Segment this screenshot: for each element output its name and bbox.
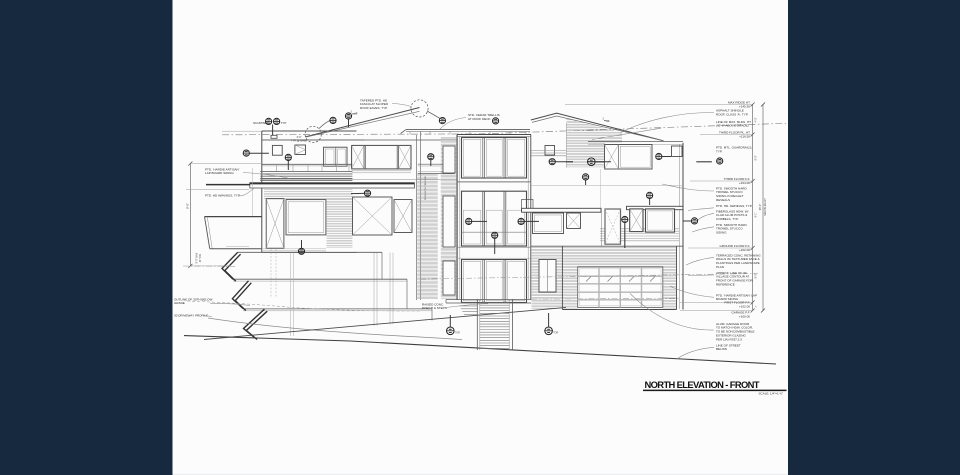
svg-text:9'-1": 9'-1" — [754, 212, 757, 217]
svg-text:TOR: TOR — [553, 332, 558, 334]
svg-text:PER (JA) R337.2.5: PER (JA) R337.2.5 — [716, 337, 742, 341]
svg-text:BELOW: BELOW — [716, 347, 727, 351]
svg-text:CORBELS, TYP.: CORBELS, TYP. — [716, 217, 739, 221]
svg-text:REFERENCE: REFERENCE — [716, 283, 735, 287]
svg-text:+104.00: +104.00 — [739, 181, 750, 185]
svg-text:AT ROOF DECK: AT ROOF DECK — [468, 117, 491, 121]
svg-text:ROOF EAVES, TYP.: ROOF EAVES, TYP. — [360, 106, 388, 110]
svg-text:+102.00: +102.00 — [739, 248, 750, 252]
svg-text:PLAN: PLAN — [716, 265, 724, 269]
svg-text:9'-0": 9'-0" — [754, 155, 757, 160]
svg-text:+100.00: +100.00 — [739, 315, 750, 319]
svg-text:ROOF, CLASS 'A', TYP.: ROOF, CLASS 'A', TYP. — [716, 112, 748, 116]
svg-text:AT TOR: AT TOR — [199, 254, 202, 263]
svg-text:SIDING: SIDING — [716, 231, 727, 235]
svg-text:8'-0": 8'-0" — [754, 273, 757, 278]
svg-text:PORCH & STEPS: PORCH & STEPS — [422, 306, 447, 310]
svg-text:30 DRIVEWAY PROFILE: 30 DRIVEWAY PROFILE — [174, 313, 208, 317]
svg-text:9'-0": 9'-0" — [186, 203, 190, 209]
svg-text:TYP.: TYP. — [716, 149, 723, 153]
svg-text:DOWNSPOUT BEYOND: DOWNSPOUT BEYOND — [425, 175, 427, 200]
svg-text:PTD. HD AWNINGS, TYP.: PTD. HD AWNINGS, TYP. — [205, 193, 240, 197]
svg-text:NORTH ELEVATION - FRONT: NORTH ELEVATION - FRONT — [645, 379, 760, 390]
svg-text:GRADE: GRADE — [174, 301, 185, 305]
svg-text:REVEALS: REVEALS — [716, 198, 730, 202]
svg-text:TOR: TOR — [455, 332, 460, 334]
svg-text:35'-0": 35'-0" — [758, 204, 762, 211]
svg-text:+116.50: +116.50 — [739, 135, 750, 139]
svg-text:TYP: TYP — [281, 121, 287, 125]
svg-text:(35'-0" ABOVE GRADE): (35'-0" ABOVE GRADE) — [716, 124, 749, 128]
svg-text:MAX BLDG HT: MAX BLDG HT — [763, 198, 767, 216]
svg-text:+102.00: +102.00 — [739, 305, 750, 309]
svg-text:LAP BOARD SIDING: LAP BOARD SIDING — [205, 171, 234, 175]
svg-text:TYP. @ EAVE: TYP. @ EAVE — [291, 139, 307, 142]
svg-text:PTD. HD. AWNINGS, TYP.: PTD. HD. AWNINGS, TYP. — [716, 204, 752, 208]
svg-text:4'-0": 4'-0" — [754, 117, 757, 122]
svg-text:SCALE: 1/4"=1'-0": SCALE: 1/4"=1'-0" — [759, 392, 783, 396]
